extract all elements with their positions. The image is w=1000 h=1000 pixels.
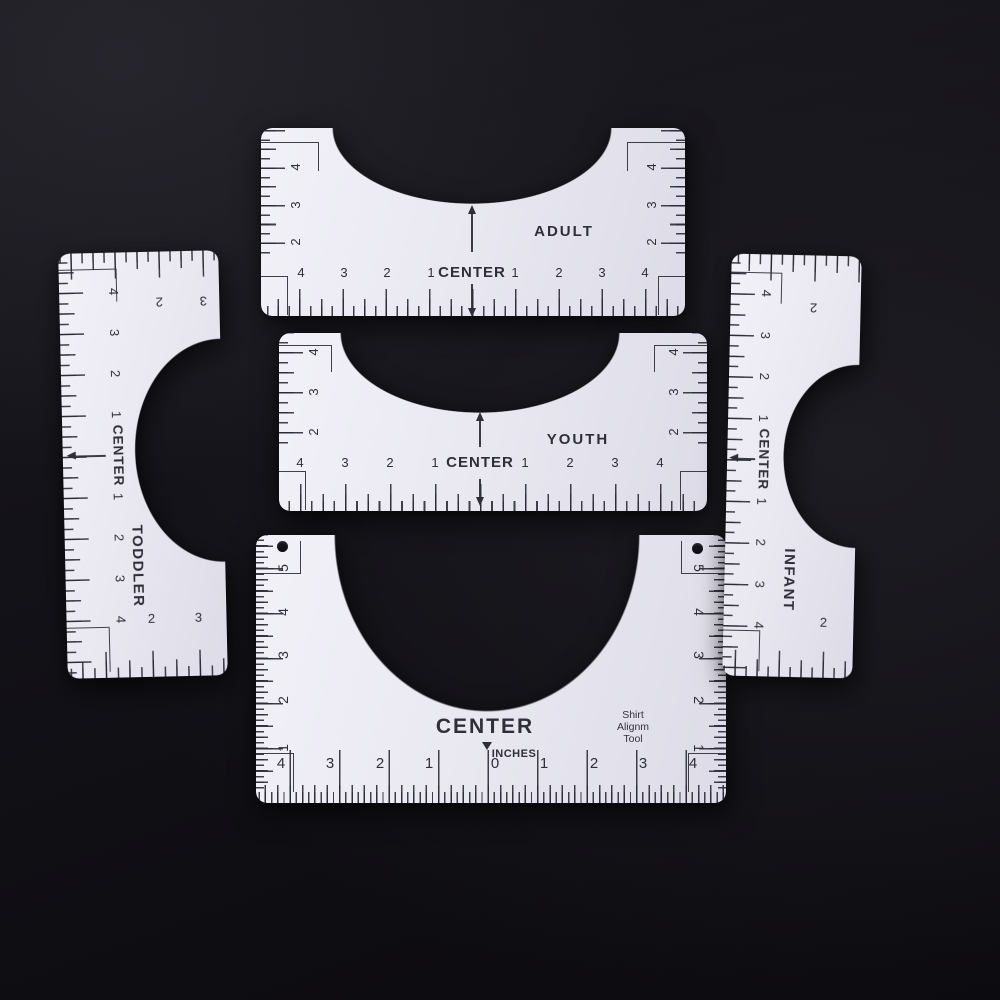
scale-number: 4 — [287, 456, 313, 469]
scale-number: 4 — [111, 609, 131, 629]
ruler-youth-body: 4 3 2 1 CENTER 1 2 3 4 4 3 2 4 3 2 YOUTH — [279, 333, 707, 511]
brand-text-line: Shirt — [593, 710, 673, 721]
ruler-infant-body: 4 3 2 1 1 2 3 4 CENTER INFANT 2 2 — [722, 254, 862, 679]
center-arrow-up-line — [479, 419, 481, 447]
tick-strip-inch — [279, 484, 705, 511]
center-label: CENTER — [754, 414, 772, 504]
scale-number: 2 — [273, 690, 293, 710]
arrow-up-icon — [476, 412, 484, 421]
scale-number: 2 — [374, 266, 400, 279]
scale-number: 2 — [751, 532, 771, 552]
scale-number: 3 — [317, 756, 343, 771]
scale-number: 2 — [810, 615, 836, 629]
arrow-up-icon — [468, 205, 476, 214]
scale-number: 2 — [367, 756, 393, 771]
corner-bracket — [59, 269, 118, 303]
size-label: ADULT — [504, 224, 624, 239]
arrow-down-icon — [476, 497, 484, 506]
size-label: INFANT — [780, 532, 798, 628]
corner-bracket — [722, 629, 760, 671]
product-photo-scene: 4 3 2 1 CENTER 1 2 3 4 4 3 2 4 3 2 ADULT — [0, 0, 1000, 1000]
corner-bracket — [680, 471, 707, 510]
scale-number: 2 — [557, 456, 583, 469]
scale-number: 3 — [285, 195, 305, 215]
scale-number: 3 — [663, 382, 683, 402]
tick-strip-inch — [722, 254, 756, 672]
scale-number: 3 — [193, 291, 213, 311]
brand-text-line: Alignm — [593, 722, 673, 733]
corner-bracket — [261, 276, 288, 315]
scale-number: 3 — [750, 574, 770, 594]
corner-bracket — [279, 345, 332, 372]
zero-marker-icon — [482, 742, 492, 750]
arrow-left-icon — [729, 454, 738, 462]
scale-number: 2 — [803, 298, 823, 318]
ruler-toddler: 4 3 2 1 1 2 3 4 CENTER TODDLER 2 3 2 3 — [58, 250, 228, 679]
scale-number: 4 — [273, 602, 293, 622]
brand-text-line: Tool — [593, 734, 673, 745]
size-label: YOUTH — [518, 432, 638, 447]
scale-number: 3 — [105, 322, 125, 342]
ruler-base-body: 4 3 2 1 0 1 2 3 4 INCHES CENTER Shirt Al… — [256, 535, 726, 803]
corner-bracket — [261, 142, 319, 171]
inches-label: INCHES — [482, 749, 546, 760]
size-label: TODDLER — [129, 518, 147, 614]
scale-number: 2 — [303, 422, 323, 442]
scale-number: 2 — [689, 690, 709, 710]
ruler-infant: 4 3 2 1 1 2 3 4 CENTER INFANT 2 2 — [722, 254, 862, 679]
scale-number: 2 — [149, 292, 169, 312]
scale-number: 2 — [377, 456, 403, 469]
scale-number: 3 — [273, 645, 293, 665]
scale-number: 2 — [546, 266, 572, 279]
scale-number: 4 — [632, 266, 658, 279]
scale-number: 2 — [285, 232, 305, 252]
scale-number: 3 — [630, 756, 656, 771]
scale-number: 2 — [755, 366, 775, 386]
corner-bracket — [658, 276, 685, 315]
center-label: CENTER — [440, 455, 520, 470]
scale-number: 4 — [689, 602, 709, 622]
center-label: CENTER — [109, 410, 127, 500]
scale-number: 3 — [756, 325, 776, 345]
scale-number: 2 — [109, 527, 129, 547]
scale-number: 2 — [106, 363, 126, 383]
scale-number: 1 — [512, 456, 538, 469]
scale-number: 4 — [647, 456, 673, 469]
scale-number: 4 — [288, 266, 314, 279]
scale-number: 3 — [331, 266, 357, 279]
corner-bracket — [681, 541, 726, 574]
center-arrow-up-line — [471, 212, 473, 252]
scale-number: 2 — [581, 756, 607, 771]
corner-bracket — [67, 627, 111, 673]
scale-number: 2 — [641, 232, 661, 252]
corner-bracket — [279, 471, 306, 510]
scale-number: 3 — [641, 195, 661, 215]
scale-number: 3 — [185, 610, 211, 624]
center-label: CENTER — [415, 716, 555, 737]
ruler-adult-body: 4 3 2 1 CENTER 1 2 3 4 4 3 2 4 3 2 ADULT — [261, 128, 685, 316]
center-arrow-down-line — [471, 284, 473, 310]
corner-bracket — [256, 753, 294, 792]
ruler-adult: 4 3 2 1 CENTER 1 2 3 4 4 3 2 4 3 2 ADULT — [261, 128, 685, 316]
corner-bracket — [256, 541, 301, 574]
scale-number: 1 — [502, 266, 528, 279]
scale-number: 3 — [689, 645, 709, 665]
ruler-toddler-body: 4 3 2 1 1 2 3 4 CENTER TODDLER 2 3 2 3 — [58, 250, 228, 679]
corner-bracket — [627, 142, 685, 171]
center-arrow-line — [73, 455, 106, 457]
center-label: CENTER — [432, 265, 512, 280]
scale-number: 3 — [303, 382, 323, 402]
scale-number: 3 — [110, 568, 130, 588]
ruler-youth: 4 3 2 1 CENTER 1 2 3 4 4 3 2 4 3 2 YOUTH — [279, 333, 707, 511]
scale-number: 2 — [663, 422, 683, 442]
scale-number: 3 — [332, 456, 358, 469]
scale-number: 1 — [416, 756, 442, 771]
corner-bracket — [654, 345, 707, 372]
scale-number: 2 — [138, 612, 164, 626]
arrow-down-icon — [468, 308, 476, 316]
corner-bracket — [731, 272, 783, 304]
tick-strip-inch — [58, 251, 92, 673]
arrow-left-icon — [67, 452, 76, 460]
scale-number: 3 — [589, 266, 615, 279]
scale-number: 3 — [602, 456, 628, 469]
ruler-base: 4 3 2 1 0 1 2 3 4 INCHES CENTER Shirt Al… — [256, 535, 726, 803]
corner-bracket — [688, 753, 726, 792]
